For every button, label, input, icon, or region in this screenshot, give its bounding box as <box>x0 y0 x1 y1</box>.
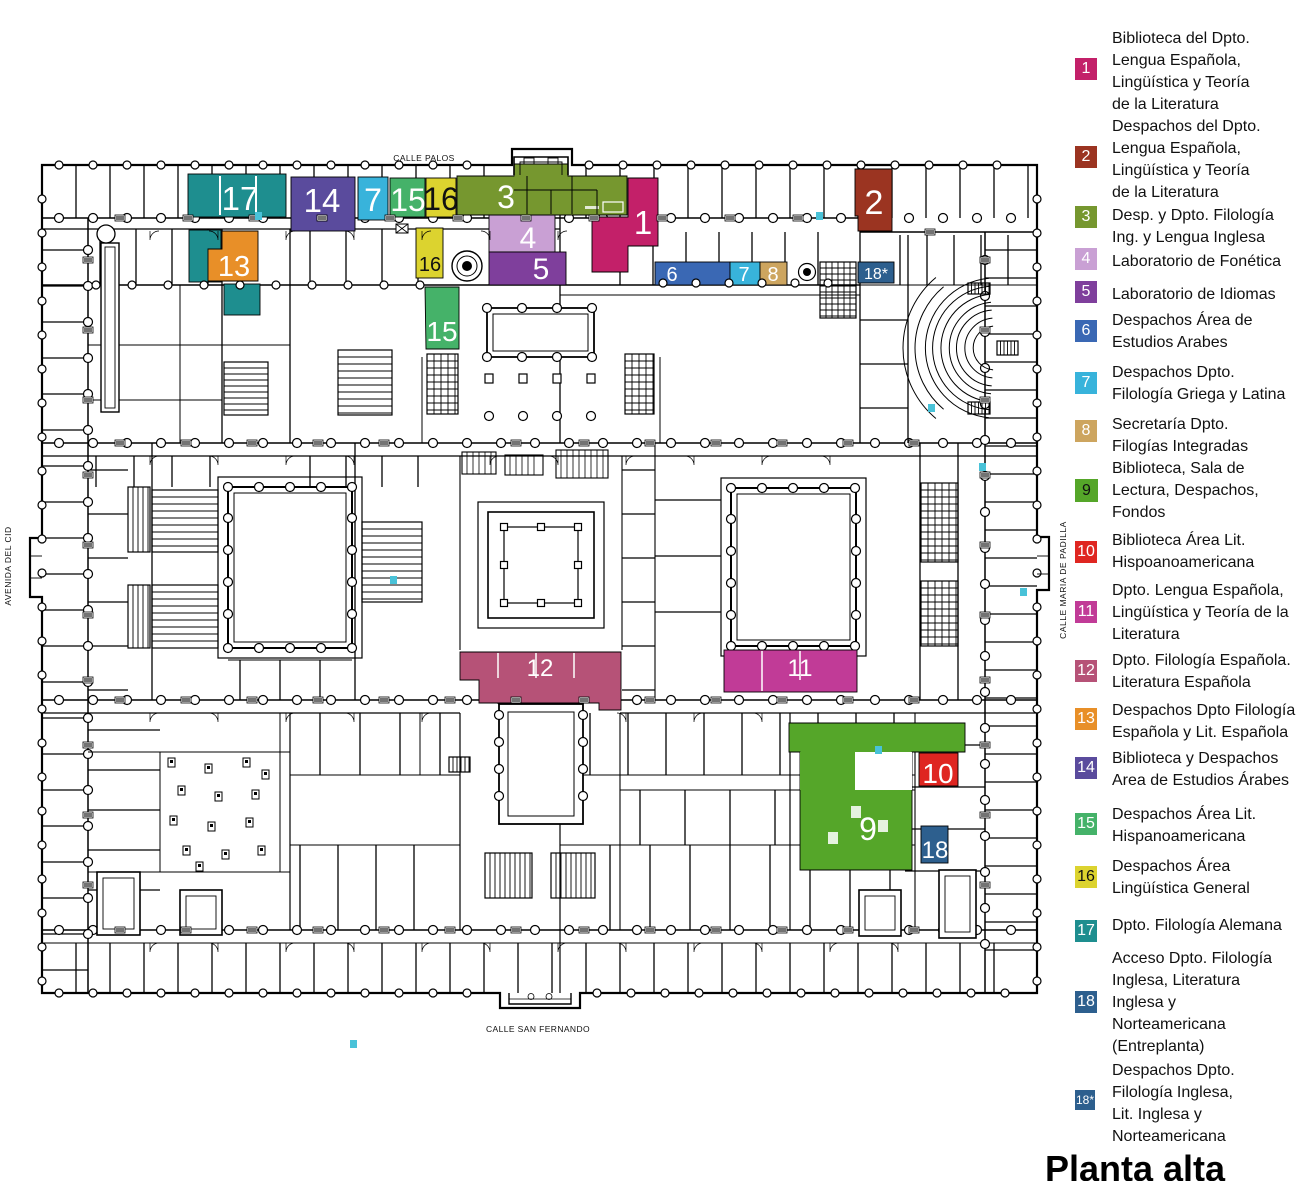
svg-text:15: 15 <box>390 182 426 218</box>
svg-text:18: 18 <box>922 837 949 864</box>
svg-text:3: 3 <box>497 179 515 215</box>
svg-text:11: 11 <box>788 655 813 682</box>
svg-text:18*: 18* <box>864 266 888 283</box>
svg-text:AVENIDA DEL CID: AVENIDA DEL CID <box>3 526 13 605</box>
svg-text:8: 8 <box>767 264 778 286</box>
svg-text:CALLE PALOS: CALLE PALOS <box>393 153 454 163</box>
svg-text:6: 6 <box>666 264 677 286</box>
svg-text:14: 14 <box>304 182 341 219</box>
svg-text:16: 16 <box>423 181 459 217</box>
svg-text:CALLE SAN FERNANDO: CALLE SAN FERNANDO <box>486 1024 590 1034</box>
svg-text:17: 17 <box>222 180 259 217</box>
svg-text:4: 4 <box>520 222 537 255</box>
svg-text:9: 9 <box>859 811 877 847</box>
svg-text:5: 5 <box>533 253 550 286</box>
svg-text:10: 10 <box>922 758 953 789</box>
svg-text:2: 2 <box>865 184 884 222</box>
svg-text:16: 16 <box>419 254 441 276</box>
svg-text:1: 1 <box>634 204 652 241</box>
svg-text:7: 7 <box>364 182 382 218</box>
svg-text:7: 7 <box>738 264 749 286</box>
svg-text:CALLE MARIA DE PADILLA: CALLE MARIA DE PADILLA <box>1058 521 1068 639</box>
svg-text:15: 15 <box>426 316 457 347</box>
svg-text:13: 13 <box>218 251 250 283</box>
svg-text:12: 12 <box>527 655 554 682</box>
